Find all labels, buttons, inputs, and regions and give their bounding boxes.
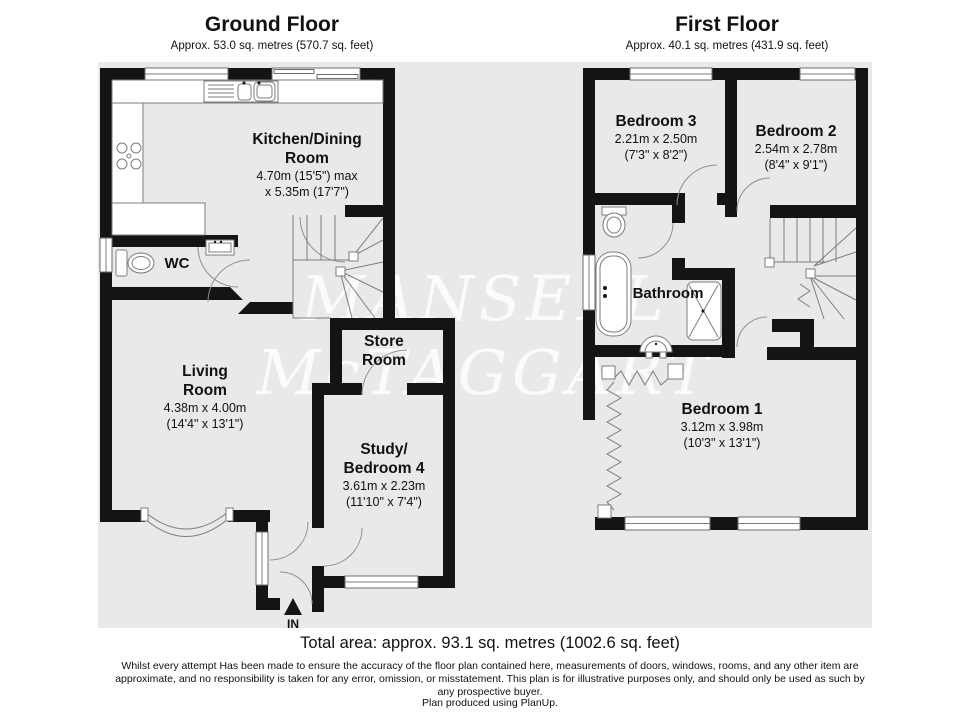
total-area: Total area: approx. 93.1 sq. metres (100… [300, 634, 680, 653]
room-label-wc: WC [165, 255, 190, 272]
ground-floor-header: Ground Floor Approx. 53.0 sq. metres (57… [171, 13, 374, 52]
room-label-bedroom1: Bedroom 1 3.12m x 3.98m (10'3" x 13'1") [681, 400, 764, 451]
kitchen-sink-fixture [204, 81, 278, 102]
room-label-kitchen: Kitchen/Dining Room 4.70m (15'5") max x … [252, 130, 361, 200]
room-label-bedroom3: Bedroom 3 2.21m x 2.50m (7'3" x 8'2") [615, 112, 698, 163]
bath-fixture [596, 252, 631, 336]
room-label-bedroom2: Bedroom 2 2.54m x 2.78m (8'4" x 9'1") [755, 122, 838, 173]
ground-floor-title: Ground Floor [171, 13, 374, 37]
wc-basin-fixture [206, 240, 234, 255]
ground-floor-stairs [293, 215, 383, 318]
first-floor-area: Approx. 40.1 sq. metres (431.9 sq. feet) [626, 40, 829, 52]
first-floor-title: First Floor [626, 13, 829, 37]
room-label-study: Study/ Bedroom 4 3.61m x 2.23m (11'10" x… [343, 440, 426, 510]
ground-floor-area: Approx. 53.0 sq. metres (570.7 sq. feet) [171, 40, 374, 52]
planup-credit: Plan produced using PlanUp. [422, 697, 558, 709]
first-floor-stairs [765, 218, 856, 319]
room-label-living: Living Room 4.38m x 4.00m (14'4" x 13'1"… [164, 362, 247, 432]
room-label-store: Store Room [362, 332, 406, 370]
bow-window [141, 508, 233, 537]
sloped-ceiling-zigzag [598, 364, 683, 518]
wc-toilet-fixture [116, 250, 154, 276]
room-label-bathroom: Bathroom [633, 285, 704, 302]
entrance-label: IN [287, 617, 299, 631]
first-floor-header: First Floor Approx. 40.1 sq. metres (431… [626, 13, 829, 52]
disclaimer-text: Whilst every attempt Has been made to en… [114, 660, 866, 699]
floor-plan-graphics [0, 0, 980, 712]
toilet-fixture [602, 207, 626, 237]
floorplan-page: MANSELL McTAGGART [0, 0, 980, 712]
entrance-arrow-icon [284, 598, 302, 615]
